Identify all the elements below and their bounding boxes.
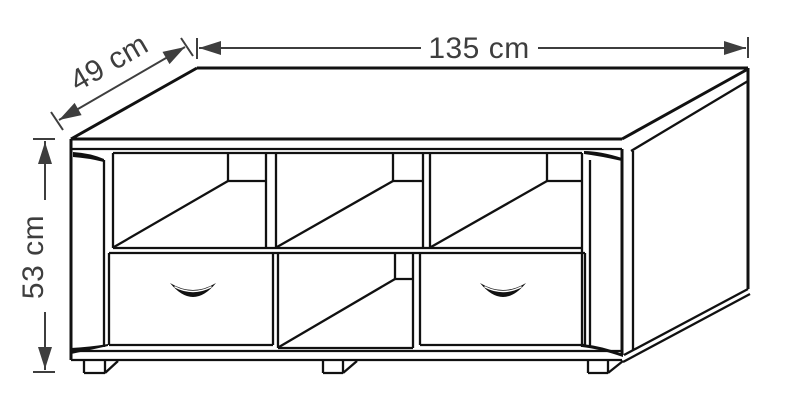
top-slab-underside-right (631, 81, 748, 151)
height-dim-arrow-up (38, 142, 52, 164)
depth-dim-arrow-top (163, 47, 186, 64)
right-drawer-handle (480, 283, 526, 297)
furniture-dimension-diagram: 135 cm 49 cm 53 cm (0, 0, 800, 418)
width-dimension-label: 135 cm (428, 32, 529, 65)
base-right-bottom-diagonal (623, 294, 750, 362)
top-right-edge (622, 69, 748, 139)
width-dim-arrow-left (199, 41, 221, 55)
foot2-depth-edge (343, 361, 357, 373)
base-right-top-diagonal (624, 289, 748, 355)
trim-top-left (73, 152, 104, 162)
lower-comp-depth-diagonal (279, 279, 395, 347)
height-dimension-label: 53 cm (17, 215, 50, 299)
depth-dim-arrow-bottom (59, 103, 82, 120)
depth-dimension-label: 49 cm (65, 27, 154, 98)
width-dim-arrow-right (724, 41, 746, 55)
trim-bottom-left (71, 344, 108, 354)
height-dim-arrow-down (38, 347, 52, 369)
foot1-depth-edge (105, 361, 118, 373)
cabinet-linework (33, 37, 750, 373)
trim-top-right (584, 151, 622, 161)
depth-dim-tick-top (181, 38, 193, 56)
cubby-left-depth-diagonal (114, 181, 228, 247)
depth-dim-tick-bottom (51, 112, 63, 130)
furniture-diagram-svg: 135 cm 49 cm 53 cm (0, 0, 800, 418)
cubby-right-depth-diagonal (431, 181, 547, 247)
left-drawer-handle (170, 283, 216, 297)
foot3-depth-edge (608, 361, 623, 373)
cubby-mid-depth-diagonal (277, 181, 393, 247)
